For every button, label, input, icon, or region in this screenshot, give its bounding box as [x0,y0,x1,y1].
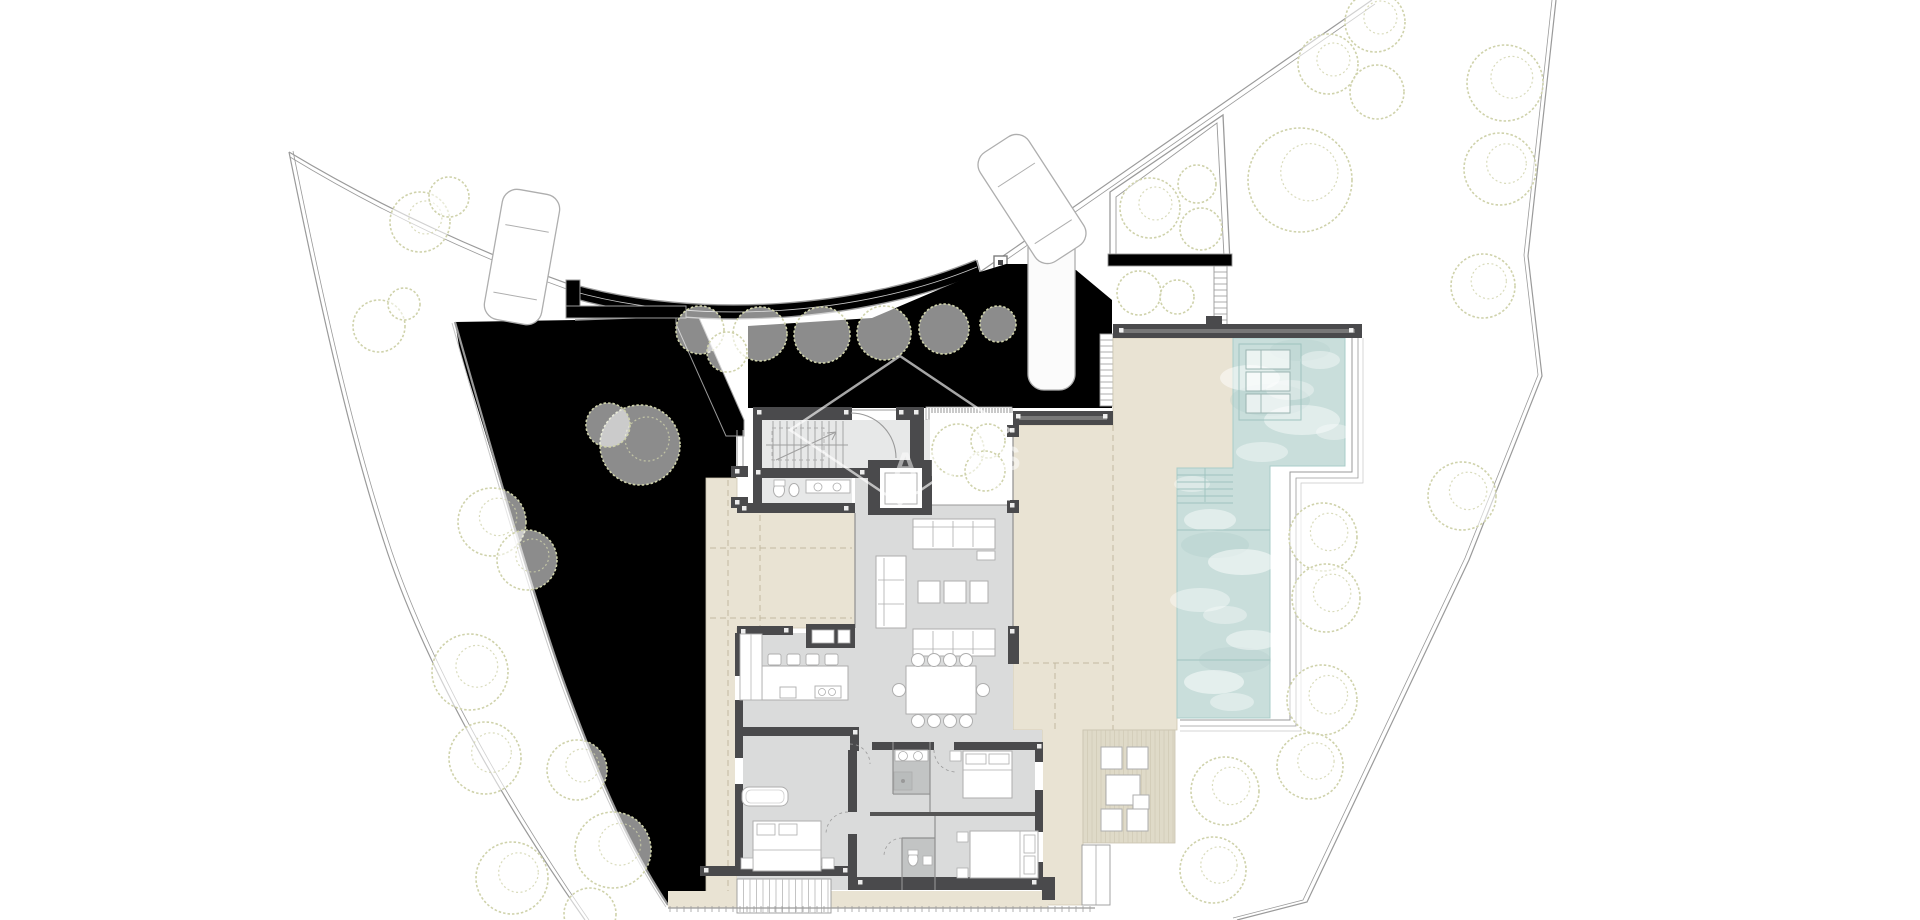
kitchen-stool [787,654,800,665]
dining-chair [912,715,925,728]
pergola-beam-court-core [1019,416,1107,420]
shower-drain [901,779,905,783]
sofa-south [913,629,995,656]
kitchen-stool [825,654,838,665]
pool-lounger-3 [1246,394,1290,413]
outdoor-chair [1127,809,1148,831]
terrace-south-strip [668,891,1048,908]
gate-post-core [998,260,1003,265]
nightstand [957,832,968,842]
kitchen-cabinet-inner-1 [812,630,834,643]
door-gap-bedroom-a [934,742,954,750]
dining-chair [893,684,906,697]
plan-root [0,0,1920,920]
kitchen-island [762,666,848,700]
outdoor-chair [1101,747,1122,769]
bed-south-pillow [1024,856,1035,874]
bed-north-pillow [989,754,1009,764]
bed-west-pillow [757,824,775,835]
outdoor-side-table [1133,795,1149,809]
retaining-wall-l-horizontal [566,306,686,318]
walled-garden-base [1108,254,1232,266]
wall-kitchen-south [737,727,851,736]
bed-north-pillow [966,754,986,764]
wall-corridor-a [848,750,857,812]
terrace-south-edge-ticks [670,906,1090,912]
dining-chair [928,654,941,667]
wall-bath-south [737,503,855,513]
dining-chair [960,715,973,728]
dining-chair [944,654,957,667]
outdoor-chair [1101,809,1122,831]
kitchen-stool [768,654,781,665]
pergola-stub [1206,316,1222,325]
toilet-tank [908,850,918,855]
pergola-beam-north-core [1120,329,1355,333]
dining-chair [928,715,941,728]
coffee-table-3 [970,581,988,603]
kitchen-cabinet-inner-2 [838,630,850,643]
nightstand [822,858,834,869]
dining-chair [944,715,957,728]
floor-plan-viewport: AR S N [0,0,1920,920]
wall-south-step [1042,877,1055,900]
window-west-2 [735,758,743,784]
sofa-west [876,556,906,628]
coffee-table-1 [918,581,940,603]
ensuite-c-basin [923,856,932,865]
wall-south-east [852,877,1043,890]
sliding-glass-track [870,812,1035,816]
outdoor-chair [1127,747,1148,769]
dining-chair [960,654,973,667]
window-east-1 [1035,762,1043,790]
dining-table [906,666,976,714]
toilet-tank [774,480,785,486]
kitchen-stool [806,654,819,665]
bed-west-pillow [779,824,797,835]
vanity-counter [806,480,850,493]
dining-chair [977,684,990,697]
pool-lounger-2 [1246,372,1290,391]
sofa-north [913,519,995,549]
site-plan-svg [0,0,1920,920]
wall-west-stair [753,407,762,513]
sofa-north-ottoman [977,551,995,560]
bed-south-pillow [1024,835,1035,853]
nightstand [950,751,961,761]
coffee-table-2 [944,581,966,603]
nightstand [957,868,968,878]
dining-chair [912,654,925,667]
wall-north-west [753,407,852,420]
pool-lounger-1 [1246,350,1290,369]
bidet [789,484,799,497]
nightstand [741,858,753,869]
